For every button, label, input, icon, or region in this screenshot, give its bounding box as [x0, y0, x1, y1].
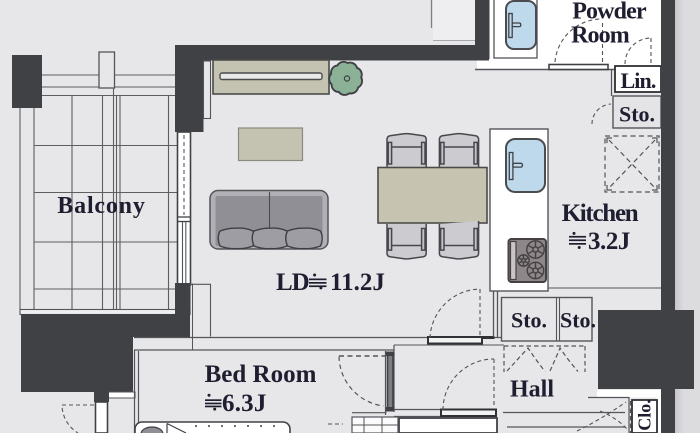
svg-text:Sto.: Sto.	[619, 102, 655, 127]
svg-text:LD: LD	[276, 269, 309, 296]
svg-text:Powder: Powder	[572, 0, 647, 25]
svg-text:Room: Room	[571, 23, 630, 49]
svg-text:Sto.: Sto.	[511, 308, 547, 333]
svg-text:Kitchen: Kitchen	[562, 200, 639, 227]
svg-text:6.3J: 6.3J	[222, 390, 267, 417]
svg-text:Sto.: Sto.	[560, 308, 596, 333]
svg-text:3.2J: 3.2J	[588, 228, 630, 255]
svg-text:Hall: Hall	[510, 377, 554, 403]
svg-text:Clo.: Clo.	[635, 399, 655, 431]
svg-text:Bed Room: Bed Room	[205, 361, 317, 388]
svg-text:11.2J: 11.2J	[330, 269, 385, 296]
svg-text:Balcony: Balcony	[57, 193, 145, 219]
svg-text:Lin.: Lin.	[621, 68, 656, 93]
